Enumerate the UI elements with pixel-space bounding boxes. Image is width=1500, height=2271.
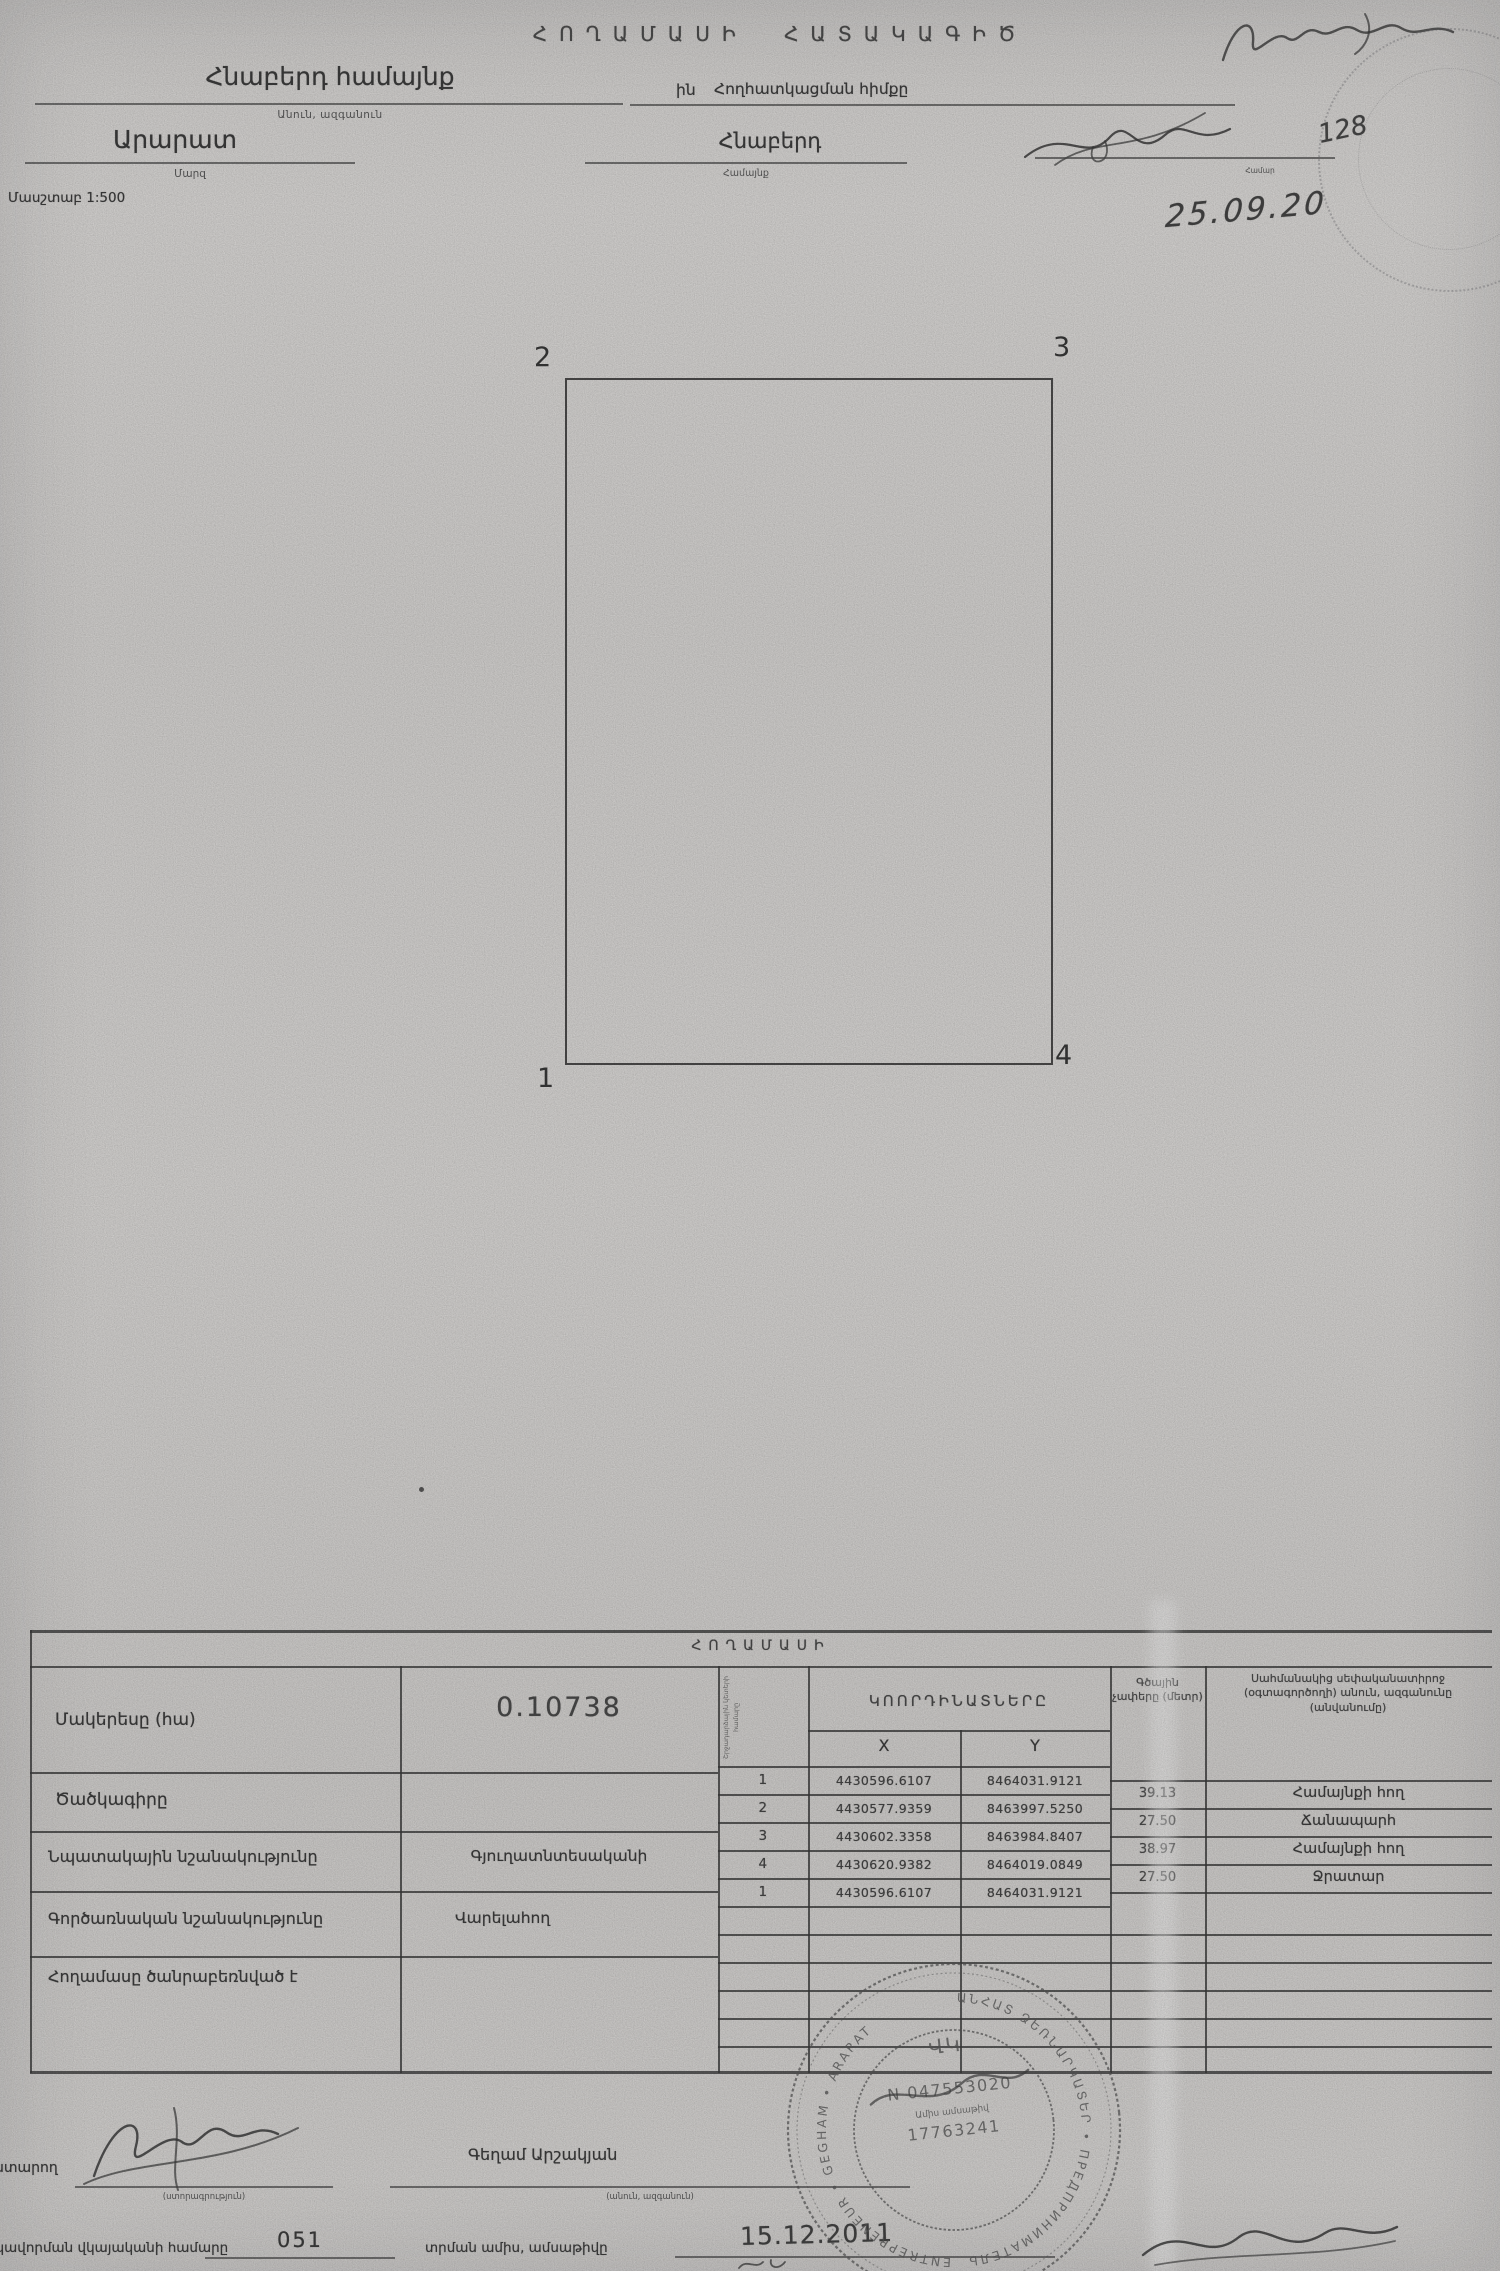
encumbrance-label: Հողամասը ծանրաբեռնված է xyxy=(48,1967,298,1986)
allocation-prefix: ին xyxy=(676,81,696,99)
table-line xyxy=(30,2071,1492,2074)
scale-label: Մասշտաբ 1:500 xyxy=(8,190,125,206)
issue-date-label: տրման ամիս, ամսաթիվը xyxy=(425,2240,608,2256)
scan-noise-overlay xyxy=(0,0,1500,2271)
underline xyxy=(1035,157,1335,159)
approval-signature xyxy=(1015,95,1245,175)
y-column-header: Y xyxy=(960,1736,1110,1755)
executor-label: Կատարող xyxy=(0,2160,58,2176)
table-line xyxy=(30,1666,1492,1668)
x-column-header: X xyxy=(808,1736,960,1755)
y-value: 8464031.9121 xyxy=(960,1773,1110,1788)
coordinates-header: ԿՈՈՐԴԻՆԱՏՆԵՐԸ xyxy=(808,1692,1110,1710)
x-value: 4430596.6107 xyxy=(808,1885,960,1900)
underline xyxy=(585,162,907,164)
table-line xyxy=(808,1730,1110,1732)
plot-corner-label-1: 1 xyxy=(537,1063,554,1094)
point-number: 1 xyxy=(718,1884,808,1900)
table-section-title: ՀՈՂԱՄԱՍԻ xyxy=(30,1638,1492,1654)
table-line xyxy=(30,1956,718,1958)
point-number: 1 xyxy=(718,1772,808,1788)
function-value: Վարելահող xyxy=(455,1909,550,1927)
x-value: 4430596.6107 xyxy=(808,1773,960,1788)
scan-light-streak xyxy=(1150,1600,1176,2271)
neighbor-value: Համայնքի հող xyxy=(1205,1836,1492,1864)
underline xyxy=(25,162,355,164)
region-caption: Մարզ xyxy=(25,168,355,180)
point-number: 2 xyxy=(718,1800,808,1816)
table-line xyxy=(30,1630,1492,1633)
y-value: 8464019.0849 xyxy=(960,1857,1110,1872)
plot-corner-label-4: 4 xyxy=(1055,1040,1072,1071)
point-number: 3 xyxy=(718,1828,808,1844)
scan-speck xyxy=(419,1487,424,1492)
allocation-basis-label: Հողհատկացման հիմքը xyxy=(714,80,908,98)
signature-caption: (ստորագրություն) xyxy=(75,2192,333,2202)
stamp-number: N 047553020 xyxy=(886,2073,1012,2105)
code-label: Ծածկագիրը xyxy=(55,1790,168,1810)
y-value: 8463997.5250 xyxy=(960,1801,1110,1816)
x-value: 4430620.9382 xyxy=(808,1857,960,1872)
neighbor-column-header: Սահմանակից սեփականատիրոջ (օգտագործողի) ա… xyxy=(1212,1672,1484,1715)
x-value: 4430602.3358 xyxy=(808,1829,960,1844)
land-plot-outline xyxy=(565,378,1053,1065)
purpose-value: Գյուղատնտեսականի xyxy=(400,1847,718,1865)
underline xyxy=(35,103,623,105)
number-caption: Համար xyxy=(1225,166,1295,175)
table-line xyxy=(400,1666,402,2073)
table-line xyxy=(718,1906,1110,1908)
table-line xyxy=(718,1934,1492,1936)
certificate-number-value: 051 xyxy=(205,2228,395,2252)
coordinate-row: 2 4430577.9359 8463997.5250 xyxy=(718,1794,1110,1822)
neighbor-value: Համայնքի հող xyxy=(1205,1780,1492,1808)
certificate-number-label: Որակավորման վկայականի համարը xyxy=(0,2240,228,2256)
function-label: Գործառնական նշանակությունը xyxy=(48,1909,323,1928)
coordinate-row: 1 4430596.6107 8464031.9121 xyxy=(718,1878,1110,1906)
executor-signature xyxy=(78,2098,308,2193)
area-value: 0.10738 xyxy=(400,1692,718,1723)
community-name-value: Հնաբերդ համայնք xyxy=(35,62,625,91)
point-number: 4 xyxy=(718,1856,808,1872)
settlement-value: Հնաբերդ xyxy=(610,129,930,153)
stamp-digits: 17763241 xyxy=(907,2116,1002,2145)
coordinate-row: 1 4430596.6107 8464031.9121 xyxy=(718,1766,1110,1794)
scanned-document-page: ՀՈՂԱՄԱՍԻ ՀԱՏԱԿԱԳԻԾ Հնաբերդ համայնք Անուն… xyxy=(0,0,1500,2271)
turning-points-column-header: Շրջադարձային կետերի համարը xyxy=(722,1671,806,1763)
page-title: ՀՈՂԱՄԱՍԻ ՀԱՏԱԿԱԳԻԾ xyxy=(520,22,1040,46)
y-value: 8463984.8407 xyxy=(960,1829,1110,1844)
table-line xyxy=(30,1891,718,1893)
area-label: Մակերեսը (հա) xyxy=(55,1710,196,1730)
neighbor-value: Ճանապարհ xyxy=(1205,1808,1492,1836)
underline xyxy=(205,2257,395,2259)
table-line xyxy=(30,1630,32,2073)
settlement-caption: Համայնք xyxy=(585,168,907,179)
table-line xyxy=(30,1772,718,1774)
x-value: 4430577.9359 xyxy=(808,1801,960,1816)
handwritten-date: 25.09.20 xyxy=(1164,185,1327,235)
y-value: 8464031.9121 xyxy=(960,1885,1110,1900)
neighbor-value: Ջրատար xyxy=(1205,1864,1492,1892)
coordinate-row: 3 4430602.3358 8463984.8407 xyxy=(718,1822,1110,1850)
bottom-right-signature xyxy=(1135,2215,1415,2271)
entrepreneur-round-stamp: ԱՆՀԱՏ ՁԵՌՆԱՐԿԱՏԵՐ • ПРЕДПРИНИМАТЕЛЬ ENTR… xyxy=(765,1941,1143,2271)
coordinate-row: 4 4430620.9382 8464019.0849 xyxy=(718,1850,1110,1878)
name-caption: Անուն, ազգանուն xyxy=(35,109,625,121)
plot-corner-label-3: 3 xyxy=(1053,332,1070,363)
stamp-center-symbol: ՎԿ xyxy=(927,2032,963,2059)
purpose-label: Նպատակային նշանակությունը xyxy=(48,1847,318,1866)
surveyor-name: Գեղամ Արշակյան xyxy=(468,2145,617,2164)
table-line xyxy=(30,1831,718,1833)
region-value: Արարատ xyxy=(10,125,340,154)
underline xyxy=(75,2186,333,2188)
plot-corner-label-2: 2 xyxy=(534,342,551,373)
